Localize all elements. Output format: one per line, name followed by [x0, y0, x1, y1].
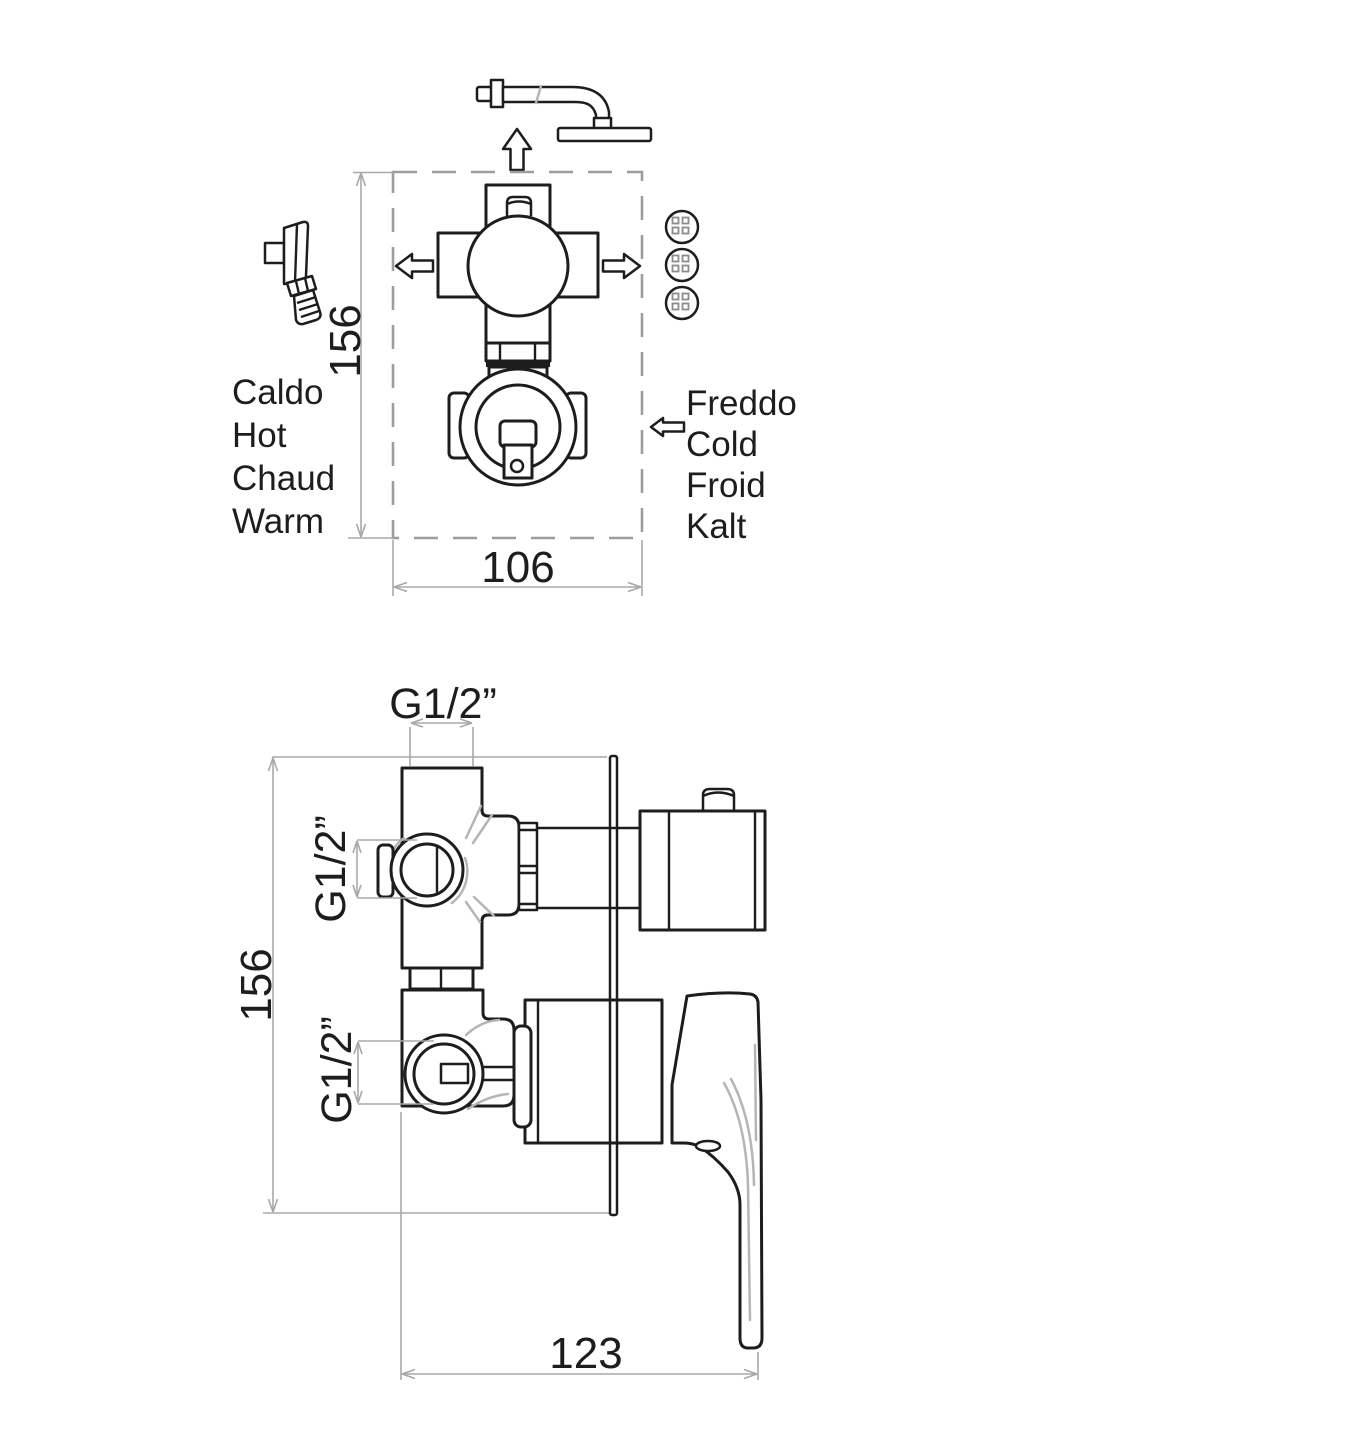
dim-156-label: 156	[321, 304, 370, 377]
hot-label-fr: Chaud	[232, 459, 335, 498]
body-connector	[410, 968, 473, 989]
function-buttons-icon	[666, 211, 698, 319]
flow-up-arrow-icon	[503, 129, 531, 170]
cold-inlet-arrow-icon	[651, 418, 684, 436]
thread-middle-label: G1/2”	[307, 815, 355, 923]
cold-label-en: Cold	[686, 425, 758, 464]
dim-106-label: 106	[481, 543, 554, 592]
flow-left-arrow-icon	[396, 254, 433, 278]
hand-shower-icon	[265, 222, 321, 324]
dimension-123-side-view: 123	[401, 1112, 758, 1380]
lever-handle-side	[672, 993, 762, 1348]
hot-label-de: Warm	[232, 502, 324, 541]
flow-right-arrow-icon	[603, 254, 640, 278]
cold-label-de: Kalt	[686, 507, 747, 546]
hot-label-it: Caldo	[232, 373, 323, 412]
shower-mixer-diagram: 156	[0, 0, 1352, 1441]
thread-top-label: G1/2”	[389, 680, 497, 728]
technical-drawing-page: 156	[0, 0, 1352, 1441]
overhead-shower-icon	[477, 80, 651, 141]
valve-body-lower	[402, 990, 662, 1143]
mixer-valve-front-view	[438, 185, 598, 485]
hot-label-en: Hot	[232, 416, 287, 455]
cold-label-it: Freddo	[686, 384, 797, 423]
cold-water-labels: Freddo Cold Froid Kalt	[686, 384, 797, 546]
diverter-knob-side	[640, 789, 765, 930]
hot-water-labels: Caldo Hot Chaud Warm	[232, 373, 335, 541]
dim-123-label: 123	[549, 1329, 622, 1378]
wall-plate	[610, 756, 617, 1215]
dimension-106-top-view: 106	[393, 540, 642, 596]
dimension-g12-top: G1/2”	[389, 680, 497, 766]
cold-label-fr: Froid	[686, 466, 766, 505]
thread-bottom-label: G1/2”	[313, 1016, 361, 1124]
dim-156-side-label: 156	[232, 948, 281, 1021]
